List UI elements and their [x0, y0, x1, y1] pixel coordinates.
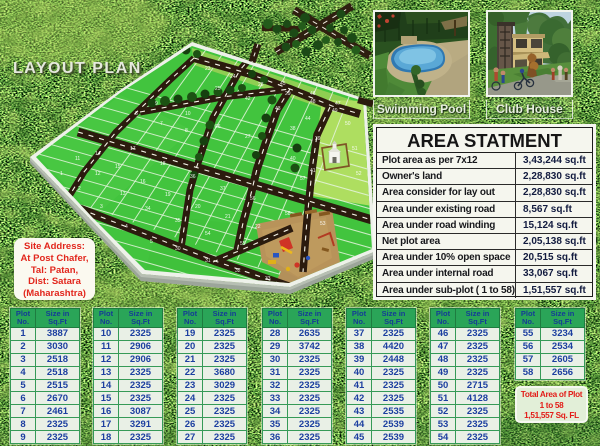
svg-text:19: 19 [165, 192, 171, 198]
svg-text:44: 44 [305, 116, 311, 122]
svg-text:38: 38 [290, 126, 296, 132]
svg-text:36: 36 [190, 174, 196, 180]
svg-text:22: 22 [255, 224, 261, 230]
svg-text:29: 29 [285, 91, 291, 97]
svg-text:8: 8 [185, 128, 188, 134]
svg-text:58: 58 [285, 211, 291, 217]
svg-text:3: 3 [100, 204, 103, 210]
svg-text:23: 23 [205, 66, 211, 72]
svg-text:37: 37 [220, 186, 226, 192]
svg-text:12: 12 [95, 171, 101, 177]
svg-text:53: 53 [320, 221, 326, 227]
svg-text:5: 5 [150, 239, 153, 245]
svg-text:24: 24 [230, 74, 236, 80]
svg-text:47: 47 [335, 101, 341, 107]
svg-text:32: 32 [235, 268, 241, 274]
svg-text:39: 39 [315, 136, 321, 142]
svg-text:35: 35 [175, 218, 181, 224]
svg-text:50: 50 [345, 121, 351, 127]
svg-text:49: 49 [332, 108, 338, 114]
svg-text:25: 25 [215, 86, 221, 92]
svg-text:43: 43 [275, 106, 281, 112]
svg-text:46: 46 [310, 91, 316, 97]
svg-text:1: 1 [60, 171, 63, 177]
svg-text:2: 2 [78, 186, 81, 192]
svg-text:41: 41 [310, 168, 316, 174]
svg-text:14: 14 [95, 151, 101, 157]
svg-text:11: 11 [75, 156, 80, 162]
svg-text:52: 52 [356, 171, 362, 177]
svg-text:45: 45 [280, 81, 286, 87]
svg-text:9: 9 [155, 101, 158, 107]
svg-text:28: 28 [258, 82, 264, 88]
svg-text:33: 33 [265, 276, 271, 282]
svg-text:6: 6 [135, 111, 138, 117]
svg-text:17: 17 [130, 146, 136, 152]
svg-text:16: 16 [140, 179, 146, 185]
svg-text:10: 10 [185, 111, 191, 117]
svg-text:15: 15 [115, 164, 121, 170]
svg-text:57: 57 [300, 176, 306, 182]
svg-text:31: 31 [205, 258, 211, 264]
svg-text:42: 42 [245, 96, 251, 102]
svg-text:56: 56 [250, 196, 256, 202]
svg-text:7: 7 [160, 121, 163, 127]
svg-text:51: 51 [352, 146, 358, 152]
svg-text:20: 20 [195, 204, 201, 210]
svg-text:48: 48 [310, 99, 316, 105]
svg-text:26: 26 [215, 124, 221, 130]
svg-text:55: 55 [240, 241, 246, 247]
svg-text:30: 30 [175, 246, 181, 252]
svg-text:54: 54 [205, 231, 211, 237]
svg-text:4: 4 [125, 224, 128, 230]
svg-text:18: 18 [160, 161, 166, 167]
svg-text:40: 40 [290, 156, 296, 162]
svg-text:34: 34 [145, 206, 151, 212]
svg-text:27: 27 [245, 134, 251, 140]
svg-text:13: 13 [120, 191, 126, 197]
svg-text:21: 21 [225, 214, 231, 220]
